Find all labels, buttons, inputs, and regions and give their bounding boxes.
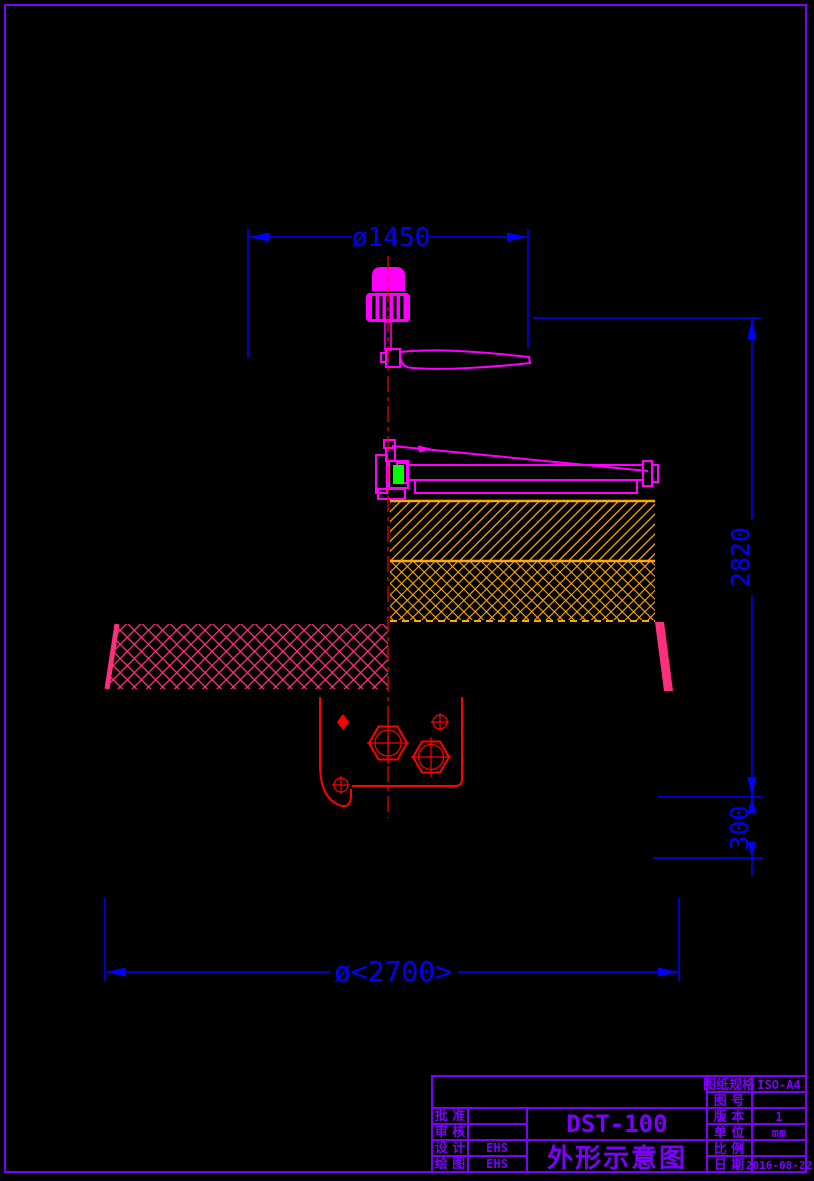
label-unit: 单 位 — [714, 1125, 745, 1141]
arrow-right — [658, 968, 678, 977]
float-collar — [390, 501, 655, 621]
dim-bottom-diameter: ø<2700> — [105, 898, 679, 988]
brace-arrow — [418, 446, 433, 453]
diagonal-brace — [392, 446, 648, 471]
arrow-right — [507, 233, 527, 242]
frame-right-cap-outer — [652, 465, 658, 482]
value-designed: EHS — [486, 1141, 508, 1155]
bolt-large-2 — [411, 737, 451, 777]
mount-frame — [376, 440, 658, 499]
impeller — [381, 349, 530, 369]
drawing-title: 外形示意图 — [547, 1143, 687, 1174]
cad-canvas: ø1450 2820 300 ø<2700> — [0, 0, 814, 1181]
dim-top-diameter-text: ø1450 — [352, 223, 430, 253]
dim-base-height-text: 300 — [725, 805, 754, 850]
title-block: 批 准 审 核 设 计 绘 图 EHS EHS DST-100 外形示意图 图纸… — [432, 1076, 812, 1174]
model-number: DST-100 — [566, 1110, 667, 1138]
value-sheet-spec: ISO-A4 — [757, 1078, 800, 1092]
bolt-small-top — [431, 713, 449, 731]
float-collar-lower-hatch — [390, 562, 655, 620]
value-drawn: EHS — [486, 1157, 508, 1171]
value-version: 1 — [775, 1110, 782, 1124]
arrow-down — [748, 777, 757, 797]
label-sheet-spec: 图纸规格 — [703, 1077, 756, 1093]
tank-wall-right — [655, 622, 673, 691]
impeller-blade — [400, 350, 530, 368]
frame-right-cap — [643, 461, 652, 486]
label-checked: 审 核 — [435, 1124, 466, 1140]
anchor-bracket — [320, 697, 462, 806]
float-collar-upper-hatch — [390, 502, 655, 561]
tank-wall-left — [107, 624, 388, 689]
label-date: 日 期 — [714, 1158, 745, 1173]
arrow-left — [106, 968, 126, 977]
label-scale: 比 例 — [714, 1141, 745, 1157]
cad-drawing: ø1450 2820 300 ø<2700> — [0, 0, 814, 1181]
dim-total-height-text: 2820 — [726, 527, 755, 587]
dim-base-height: 300 — [653, 797, 763, 876]
impeller-hub-key — [381, 353, 386, 362]
label-designed: 设 计 — [435, 1140, 466, 1156]
dim-bottom-diameter-text: ø<2700> — [334, 955, 452, 988]
tank-wall-left-hatch — [107, 624, 388, 689]
frame-bottom-beam — [415, 480, 637, 493]
bolt-small-bottom — [332, 776, 350, 794]
weld-diamond-marker — [337, 714, 349, 730]
value-date: 2016-08-22 — [746, 1159, 812, 1172]
arrow-up — [748, 319, 757, 339]
label-drawn: 绘 图 — [435, 1156, 466, 1172]
label-drawing-no: 图 号 — [714, 1094, 745, 1109]
value-unit: mm — [772, 1126, 786, 1140]
indicator-block — [393, 465, 404, 484]
label-version: 版 本 — [714, 1109, 745, 1125]
arrow-left — [249, 233, 269, 242]
label-approved: 批 准 — [435, 1108, 466, 1124]
